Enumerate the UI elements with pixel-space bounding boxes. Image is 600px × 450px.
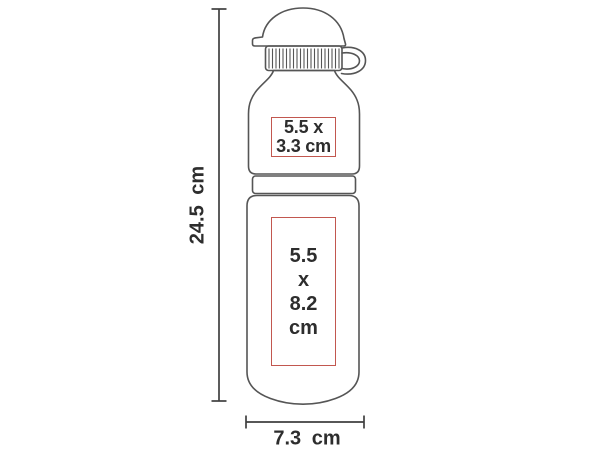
bottle-cap <box>253 8 366 74</box>
height-dimension-line <box>212 9 227 401</box>
print-area-body-line: 5.5 <box>290 244 318 268</box>
cap-ribs <box>269 49 339 69</box>
print-area-body-box: 5.5 x 8.2 cm <box>271 217 336 366</box>
print-area-neck-line: 5.5 x <box>284 118 323 137</box>
print-area-neck-line: 3.3 cm <box>276 137 331 156</box>
print-area-neck-box: 5.5 x 3.3 cm <box>271 117 336 157</box>
print-area-body-line: x <box>298 268 309 292</box>
bottle-waist-band <box>253 176 356 194</box>
carry-loop <box>342 47 366 74</box>
print-area-body-line: 8.2 <box>290 292 318 316</box>
height-dimension-label: 24.5 cm <box>187 166 210 244</box>
cap-dome <box>253 8 346 46</box>
bottle-dimension-diagram: 5.5 x 3.3 cm 5.5 x 8.2 cm 24.5 cm 7.3 cm <box>0 0 600 450</box>
print-area-body-line: cm <box>289 316 318 340</box>
width-dimension-label: 7.3 cm <box>273 428 340 450</box>
